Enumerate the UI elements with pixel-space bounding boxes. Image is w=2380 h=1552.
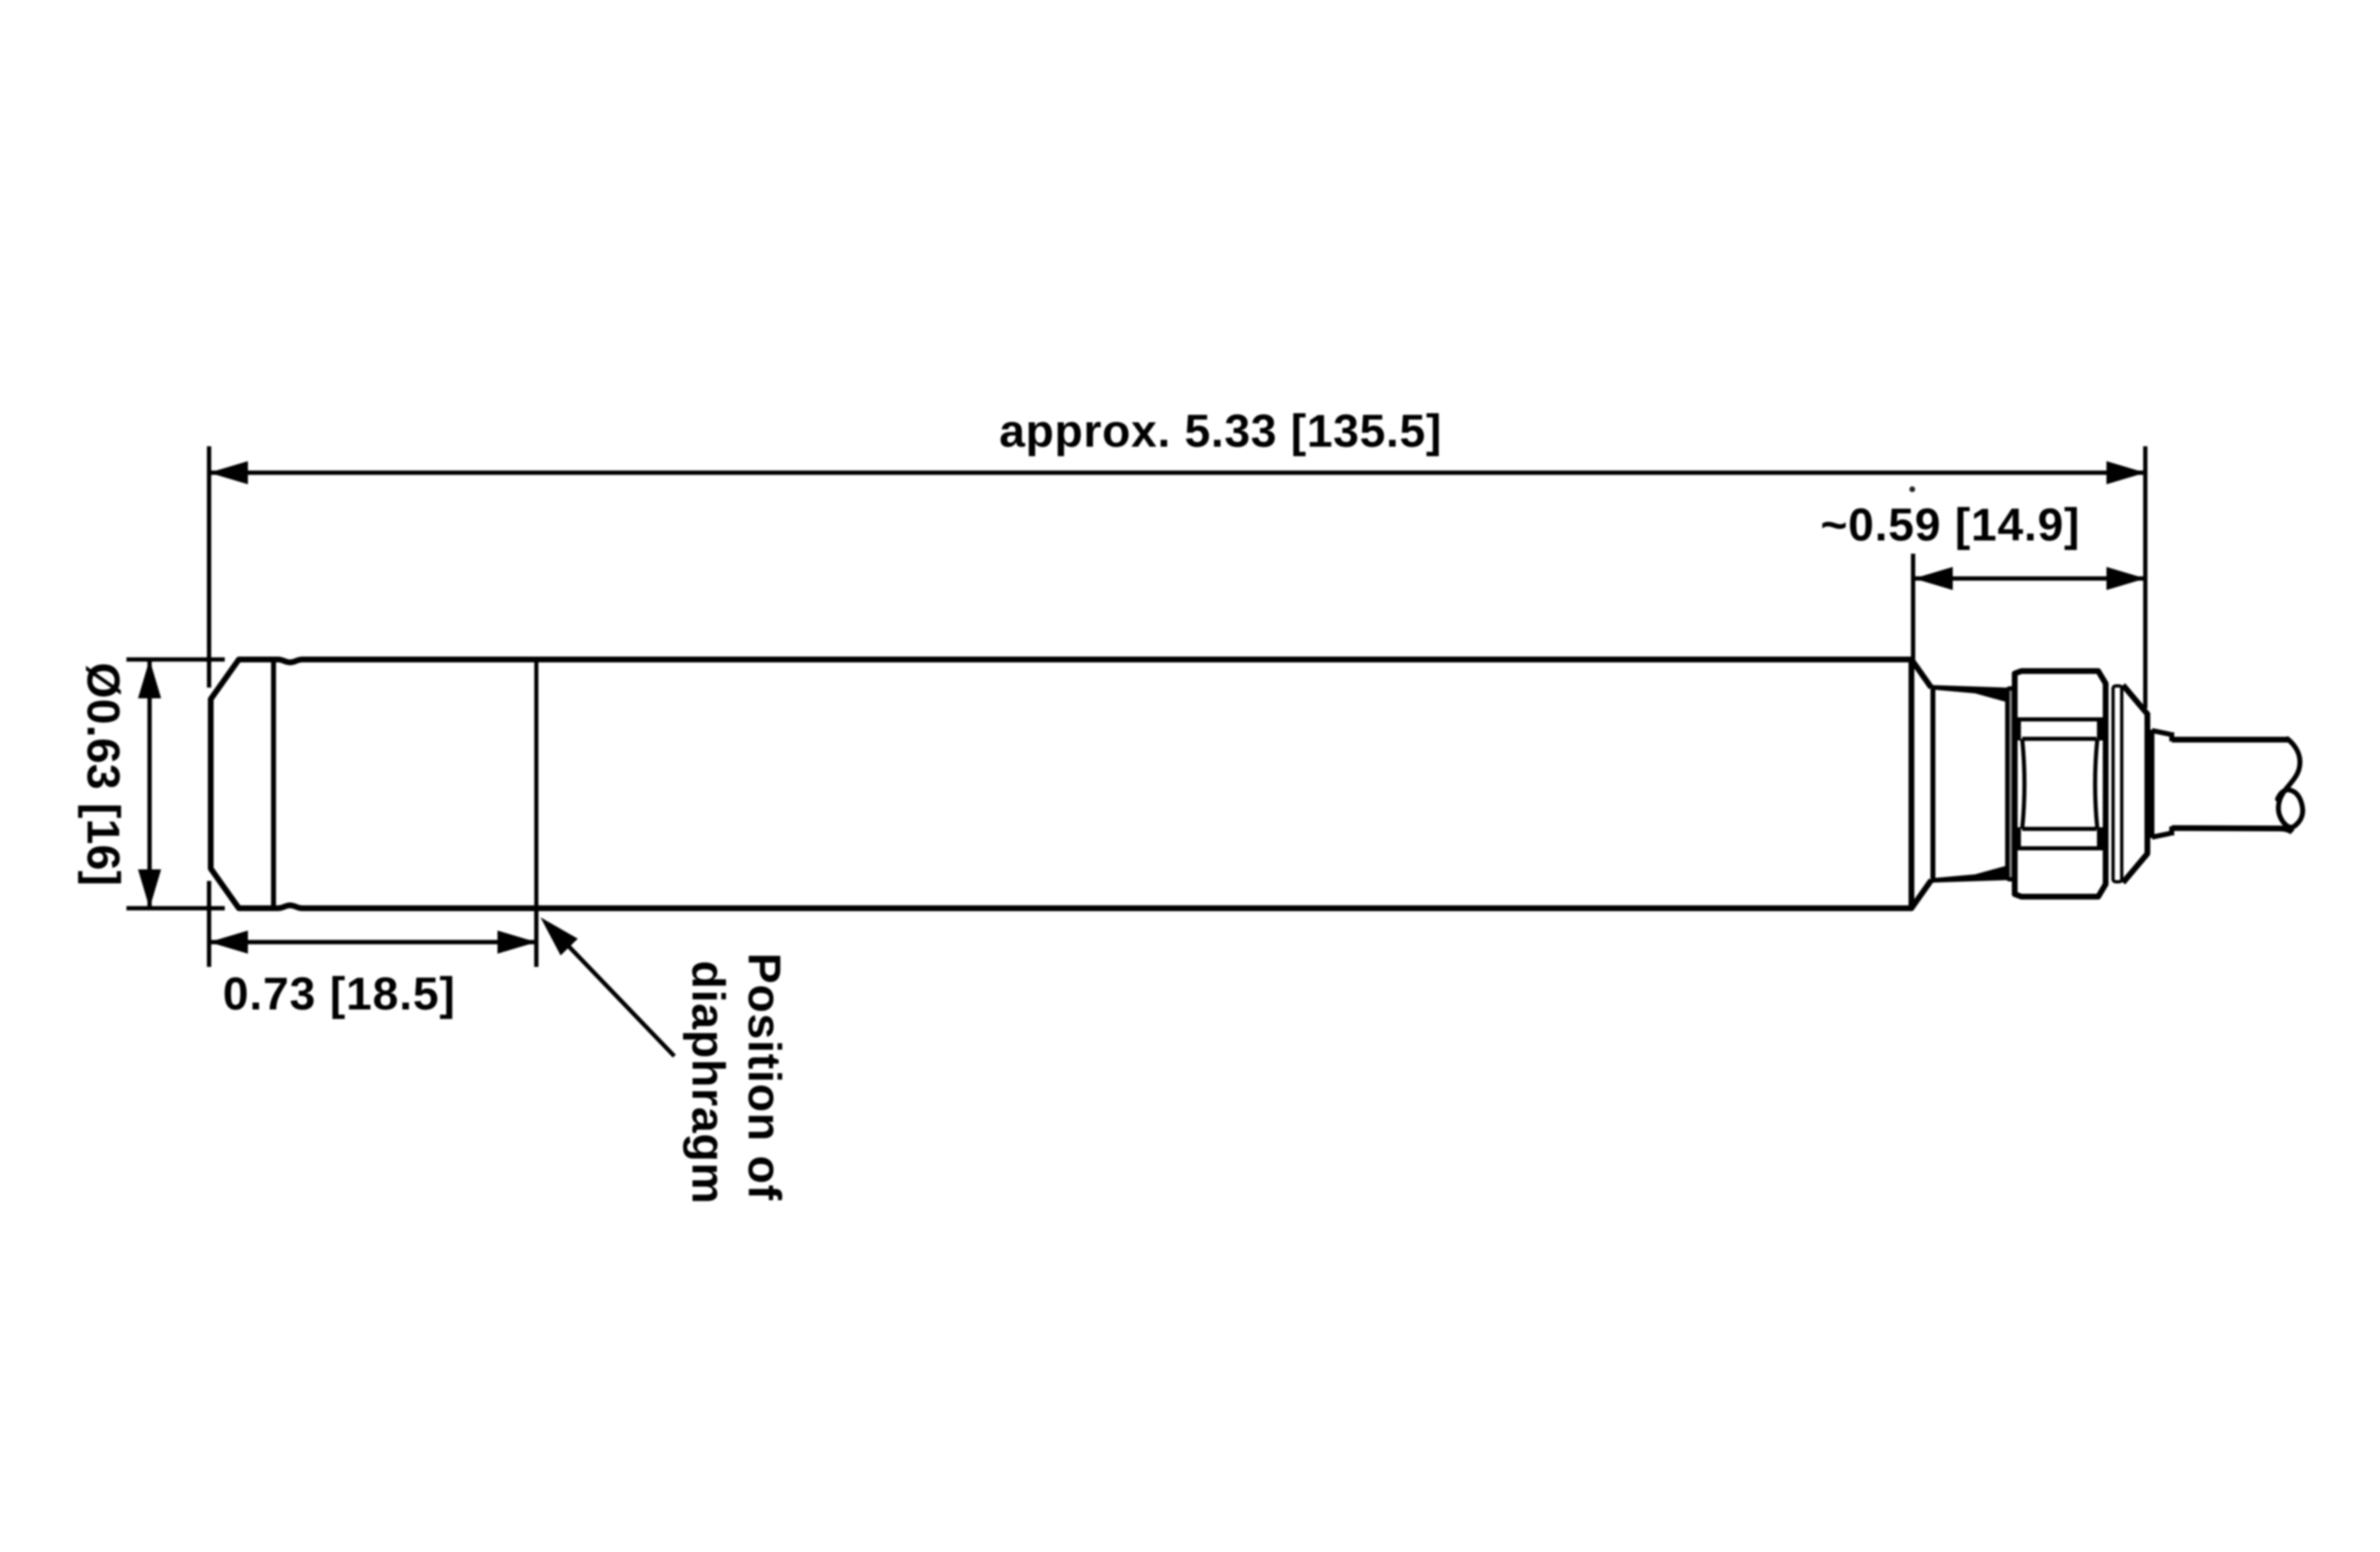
svg-text:approx. 5.33 [135.5]: approx. 5.33 [135.5] <box>999 405 1442 457</box>
svg-text:Position of: Position of <box>739 953 791 1201</box>
svg-text:0.73 [18.5]: 0.73 [18.5] <box>223 968 456 1020</box>
svg-text:Ø0.63 [16]: Ø0.63 [16] <box>78 663 130 887</box>
svg-text:diaphragm: diaphragm <box>683 960 735 1204</box>
svg-text:~0.59 [14.9]: ~0.59 [14.9] <box>1821 498 2080 550</box>
